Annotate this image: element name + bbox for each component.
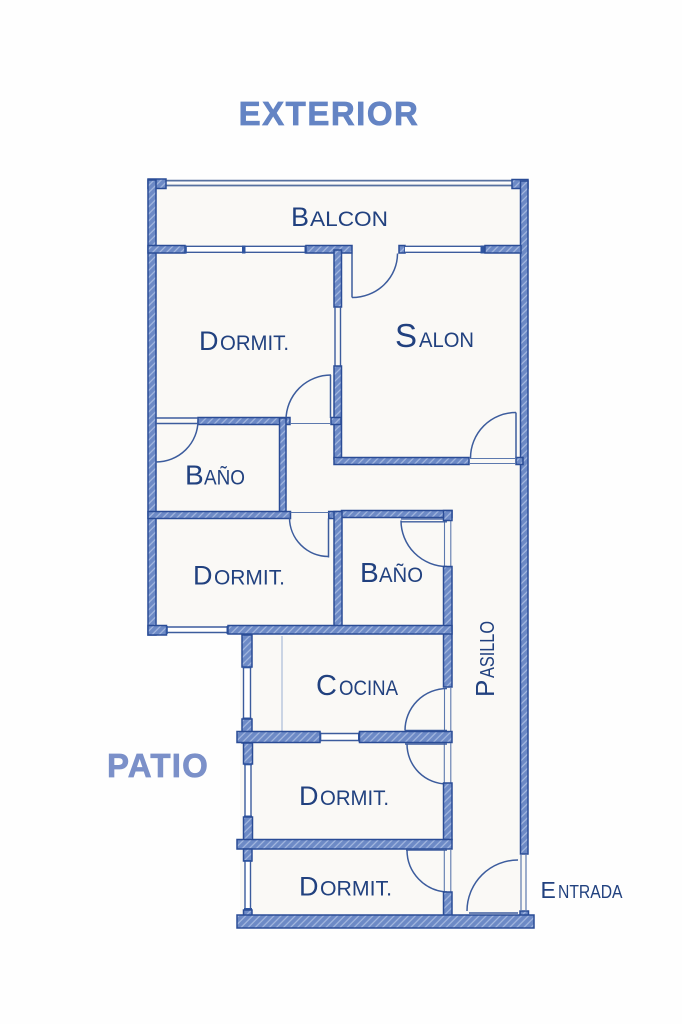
svg-text:S: S xyxy=(395,317,417,354)
svg-text:D: D xyxy=(299,872,319,902)
svg-text:B: B xyxy=(185,460,204,491)
svg-text:ASILLO: ASILLO xyxy=(477,621,499,678)
svg-text:B: B xyxy=(360,557,379,588)
svg-text:AÑO: AÑO xyxy=(204,466,245,490)
svg-text:EXTERIOR: EXTERIOR xyxy=(239,95,420,132)
svg-text:OCINA: OCINA xyxy=(339,677,398,700)
svg-text:E: E xyxy=(541,877,556,903)
svg-text:NTRADA: NTRADA xyxy=(558,882,623,902)
svg-text:ALCON: ALCON xyxy=(310,208,388,231)
svg-text:ORMIT.: ORMIT. xyxy=(214,567,285,590)
svg-text:P: P xyxy=(470,680,500,697)
svg-text:ALON: ALON xyxy=(419,329,474,352)
svg-text:D: D xyxy=(193,561,213,591)
svg-text:D: D xyxy=(299,781,319,811)
svg-text:AÑO: AÑO xyxy=(379,563,423,587)
svg-text:B: B xyxy=(291,202,309,232)
svg-text:ORMIT.: ORMIT. xyxy=(320,787,389,810)
svg-text:ORMIT.: ORMIT. xyxy=(320,878,392,901)
svg-text:D: D xyxy=(199,326,219,356)
svg-text:ORMIT.: ORMIT. xyxy=(220,332,289,355)
svg-text:C: C xyxy=(316,670,337,702)
svg-text:PATIO: PATIO xyxy=(107,747,209,784)
